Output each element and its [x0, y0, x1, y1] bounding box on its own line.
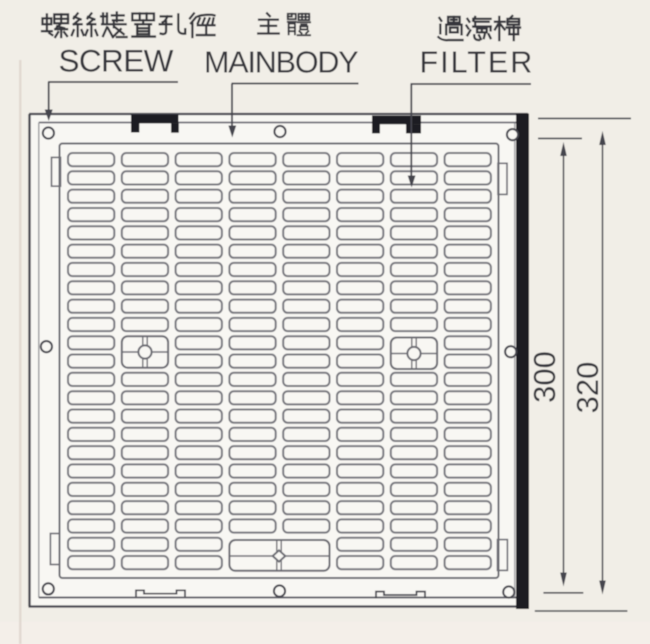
svg-text:SCREW: SCREW: [59, 43, 174, 79]
svg-text:300: 300: [527, 351, 562, 403]
svg-text:320: 320: [570, 362, 605, 414]
svg-text:FILTER: FILTER: [420, 46, 535, 80]
svg-text:MAINBODY: MAINBODY: [204, 46, 358, 80]
